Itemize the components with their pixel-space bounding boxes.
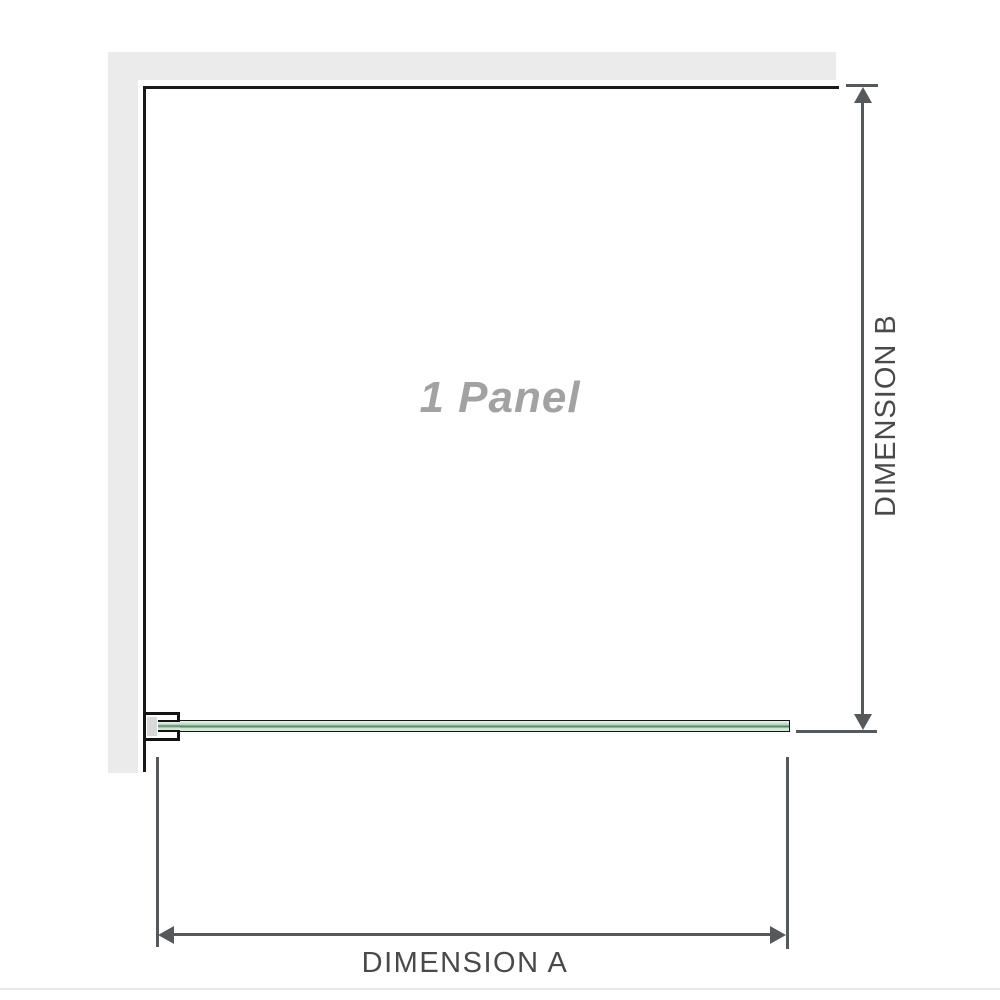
dimension-a-arrow-right-icon — [770, 926, 786, 944]
shower-panel-dimension-diagram: 1 Panel DIMENSION B DIMENSION A — [0, 0, 1000, 1000]
dimension-b-bottom-tick — [796, 730, 877, 733]
dimension-b-arrow-down-icon — [854, 714, 872, 730]
panel-top-edge-line — [143, 86, 839, 89]
dimension-a-left-extension — [156, 757, 159, 947]
glass-panel-bar — [157, 720, 790, 732]
dimension-b-label: DIMENSION B — [869, 317, 903, 517]
bracket-inner-block — [147, 717, 157, 736]
panel-count-label: 1 Panel — [340, 370, 660, 426]
dimension-b-arrow-up-icon — [854, 87, 872, 103]
wall-left-strip — [108, 52, 138, 773]
wall-top-strip — [108, 52, 836, 80]
dimension-a-label: DIMENSION A — [345, 946, 585, 980]
glass-in-bracket — [158, 720, 180, 732]
dimension-a-line — [172, 933, 772, 936]
dimension-a-right-extension — [786, 757, 789, 949]
dimension-b-line — [861, 96, 864, 718]
footer-divider-line — [0, 988, 1000, 990]
dimension-a-arrow-left-icon — [158, 926, 174, 944]
panel-left-edge-line — [143, 86, 146, 772]
